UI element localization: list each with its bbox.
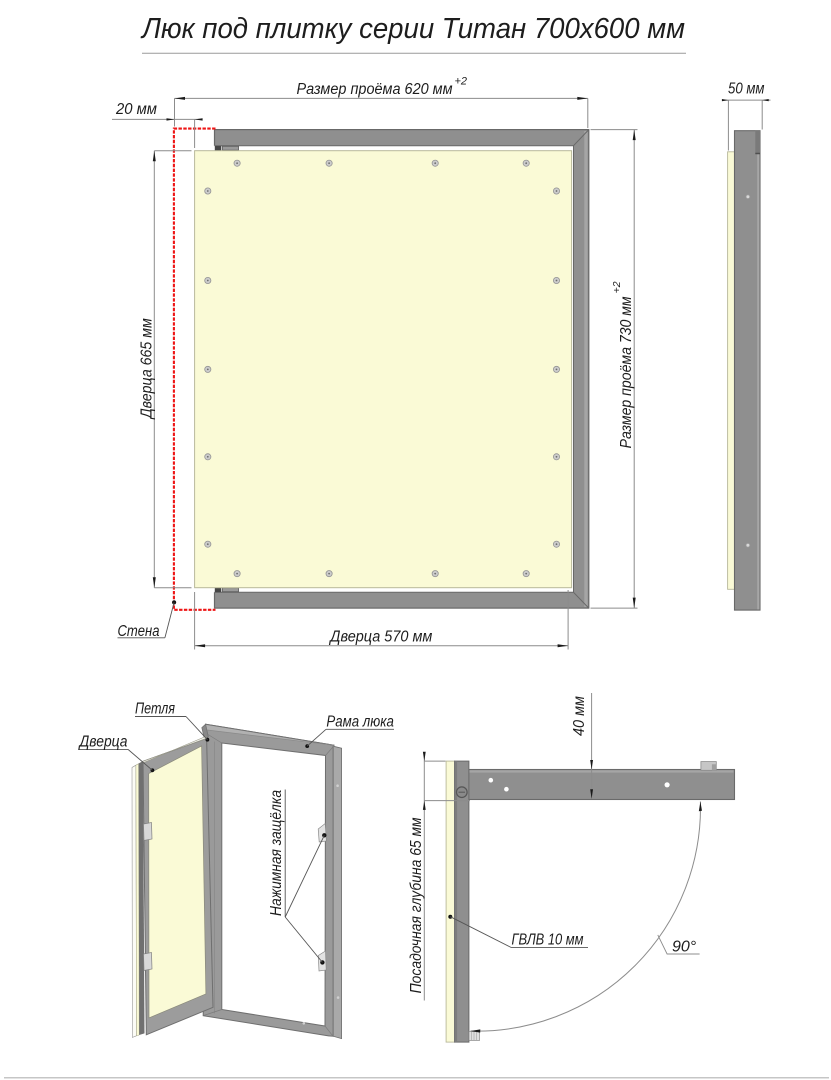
- svg-text:Нажимная защёлка: Нажимная защёлка: [268, 790, 285, 916]
- svg-text:Рама люка: Рама люка: [326, 714, 394, 731]
- svg-text:90°: 90°: [672, 939, 697, 956]
- svg-text:+2: +2: [611, 281, 623, 293]
- svg-text:Дверца: Дверца: [78, 734, 128, 751]
- svg-text:40 мм: 40 мм: [571, 696, 588, 736]
- svg-text:50 мм: 50 мм: [728, 81, 765, 98]
- svg-text:Размер проёма 730 мм: Размер проёма 730 мм: [618, 296, 635, 448]
- svg-text:Дверца 665 мм: Дверца 665 мм: [138, 318, 155, 420]
- svg-text:Размер проёма 620 мм: Размер проёма 620 мм: [297, 81, 453, 98]
- svg-text:Посадочная глубина 65 мм: Посадочная глубина 65 мм: [408, 817, 425, 993]
- svg-text:Дверца 570 мм: Дверца 570 мм: [328, 629, 432, 646]
- svg-text:ГВЛВ 10 мм: ГВЛВ 10 мм: [512, 932, 584, 949]
- svg-text:Петля: Петля: [135, 701, 175, 718]
- svg-text:Стена: Стена: [118, 623, 160, 640]
- svg-text:Люк под плитку серии Титан 700: Люк под плитку серии Титан 700х600 мм: [140, 13, 685, 45]
- svg-text:+2: +2: [455, 76, 468, 88]
- svg-text:20 мм: 20 мм: [115, 101, 157, 118]
